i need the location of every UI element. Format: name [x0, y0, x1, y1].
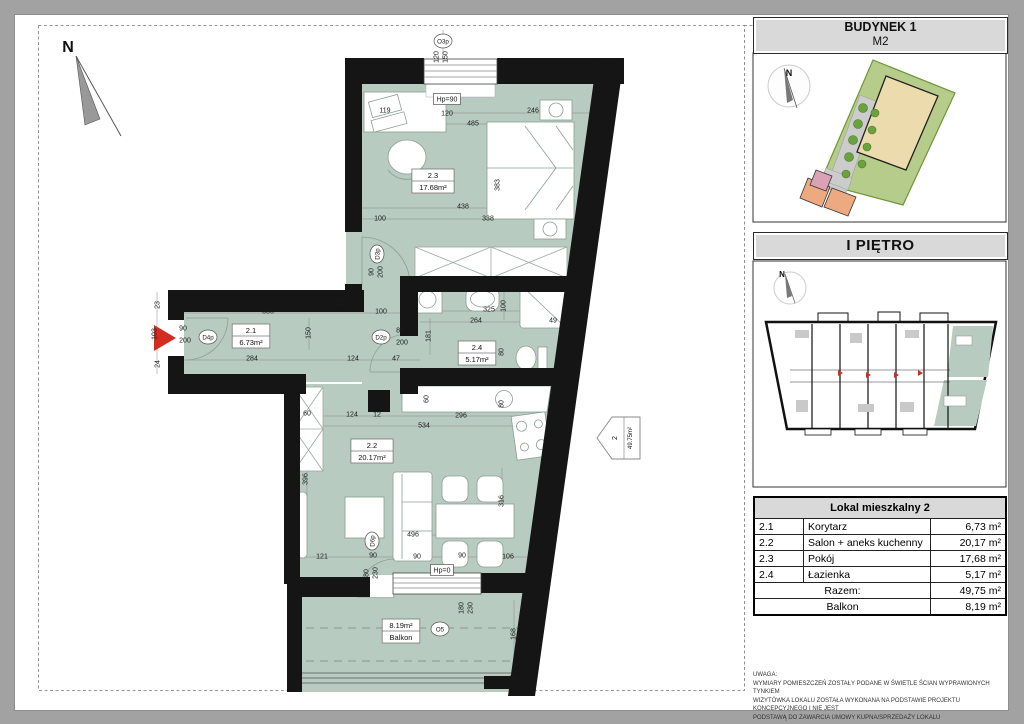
bed: [487, 122, 574, 219]
dimension-label: 200: [179, 337, 191, 344]
dimension-label: 24: [154, 360, 161, 368]
dimension-label: 90: [413, 553, 421, 560]
room-name-cell: Pokój: [804, 551, 931, 567]
dimension-label: 12: [510, 674, 517, 682]
dimension-label: Hp=0: [434, 567, 451, 574]
dimension-label: 485: [467, 120, 479, 127]
room-number: 2.2: [367, 441, 377, 450]
dimension-label: 90: [179, 325, 187, 332]
dimension-label: 80: [363, 569, 370, 577]
summary-area-cell: 8,19 m²: [931, 599, 1007, 616]
room-name-cell: Salon + aneks kuchenny: [804, 535, 931, 551]
disclaimer-notes: UWAGA: WYMIARY POMIESZCZEŃ ZOSTAŁY PODAN…: [753, 671, 1005, 722]
dimension-label: 103: [151, 328, 158, 340]
floorplan-sheet: { "panel": { "building_title": "BUDYNEK …: [0, 0, 1024, 724]
unit-number: 2: [612, 436, 619, 440]
unit-area-table: Lokal mieszkalny 2 2.1Korytarz6,73 m²2.2…: [753, 496, 1007, 616]
note-line: PODSTAWĄ DO ZAWARCIA UMOWY KUPNA/SPRZEDA…: [753, 714, 1005, 723]
opening-label: D2p: [375, 334, 387, 341]
dimension-label: 180: [458, 602, 465, 614]
building-header: BUDYNEK 1 M2: [753, 17, 1008, 54]
compass-n-label: N: [786, 68, 793, 78]
dimension-label: 119: [379, 107, 390, 114]
opening-label: O3p: [437, 38, 449, 45]
dimension-label: 124: [347, 355, 359, 362]
dimension-label: 284: [246, 355, 258, 362]
dimension-label: 396: [302, 473, 309, 485]
note-line: WYMIARY POMIESZCZEŃ ZOSTAŁY PODANE W ŚWI…: [753, 680, 1005, 697]
dimension-label: 49: [549, 317, 557, 324]
summary-area-cell: 49,75 m²: [931, 583, 1007, 599]
dimension-label: 60: [423, 395, 430, 403]
dimension-label: 80: [498, 400, 505, 408]
dimension-label: 90: [368, 268, 375, 276]
dimension-label: 168: [510, 628, 517, 640]
opening-label: D3p: [374, 248, 381, 260]
room-number: 2.4: [472, 343, 482, 352]
dimension-label: 90: [458, 552, 466, 559]
dimension-label: 200: [396, 339, 408, 346]
dining-chair: [442, 476, 468, 502]
room-area: 17.68m²: [419, 183, 447, 192]
dimension-label: 12: [337, 299, 344, 307]
room-number-cell: 2.3: [754, 551, 804, 567]
dining-chair: [477, 541, 503, 567]
summary-label-cell: Balkon: [754, 599, 931, 616]
dimension-label: 230: [467, 602, 474, 614]
room-number-cell: 2.2: [754, 535, 804, 551]
room-number: 8.19m²: [389, 621, 413, 630]
sofa: [393, 472, 432, 561]
dimension-label: 246: [527, 107, 539, 114]
dimension-label: 80: [498, 348, 505, 356]
dimension-label: 383: [494, 179, 501, 191]
toilet: [516, 346, 536, 370]
lamp-icon: [549, 103, 563, 117]
room-number: 2.1: [246, 326, 256, 335]
dimension-label: 181: [425, 330, 432, 342]
dimension-label: 120: [441, 110, 453, 117]
dimension-label: 80: [396, 327, 404, 334]
room-number: 2.3: [428, 171, 438, 180]
window-o5: [393, 573, 481, 594]
table-row: 2.2Salon + aneks kuchenny20,17 m²: [754, 535, 1006, 551]
table-row: 2.1Korytarz6,73 m²: [754, 519, 1006, 535]
site-plan: [753, 53, 1006, 222]
dimension-label: 100: [500, 300, 507, 312]
dimension-label: 338: [482, 215, 494, 222]
dimension-label: 264: [470, 317, 482, 324]
dimension-label: 438: [457, 203, 469, 210]
dimension-label: 316: [498, 495, 505, 507]
dimension-label: 150: [305, 327, 312, 339]
coffee-table: [345, 497, 384, 538]
dimension-label: 124: [346, 411, 358, 418]
room-number-cell: 2.4: [754, 567, 804, 583]
dimension-label: 121: [316, 553, 328, 560]
dimension-label: 150: [442, 51, 449, 63]
room-area: 6.73m²: [239, 338, 263, 347]
dimension-label: 90: [369, 552, 377, 559]
dimension-label: 106: [502, 553, 514, 560]
dimension-label: 60: [303, 410, 311, 417]
room-name-cell: Korytarz: [804, 519, 931, 535]
dimension-label: 12: [373, 411, 381, 418]
room-name-cell: Łazienka: [804, 567, 931, 583]
note-line: UWAGA:: [753, 671, 1005, 680]
dimension-label: 355: [262, 308, 274, 315]
table-row: 2.3Pokój17,68 m²: [754, 551, 1006, 567]
highlighted-unit: [947, 326, 993, 377]
dimension-label: 120: [433, 51, 440, 63]
dining-table: [436, 504, 514, 538]
building-unit: M2: [754, 36, 1007, 49]
dimension-label: 100: [374, 215, 386, 222]
room-area-cell: 20,17 m²: [931, 535, 1007, 551]
building-title: BUDYNEK 1: [754, 19, 1007, 36]
dimension-label: 23: [154, 301, 161, 309]
dimension-label: 100: [375, 308, 387, 315]
room-area-cell: 5,17 m²: [931, 567, 1007, 583]
dimension-label: Hp=90: [437, 96, 458, 103]
opening-label: O5: [436, 626, 445, 633]
dimension-label: 47: [392, 355, 400, 362]
unit-total-area: 49.75m²: [628, 427, 634, 449]
room-area: 5.17m²: [465, 355, 489, 364]
lamp-icon: [543, 222, 557, 236]
table-row: 2.4Łazienka5,17 m²: [754, 567, 1006, 583]
summary-row: Balkon8,19 m²: [754, 599, 1006, 616]
summary-row: Razem:49,75 m²: [754, 583, 1006, 599]
floor-header: I PIĘTRO: [753, 232, 1008, 260]
dimension-label: 496: [407, 531, 419, 538]
door-recess-floor: [346, 230, 362, 290]
table-title: Lokal mieszkalny 2: [754, 497, 1006, 519]
dimension-label: 230: [372, 567, 379, 579]
floor-overview: [753, 261, 1006, 487]
washer-drum-icon: [419, 291, 436, 308]
room-number-cell: 2.1: [754, 519, 804, 535]
toilet-tank: [538, 347, 547, 369]
room-area: 20.17m²: [358, 453, 386, 462]
dimension-label: 296: [455, 412, 467, 419]
dimension-label: 325: [483, 306, 495, 313]
wardrobe-hatched: [415, 247, 567, 278]
dimension-label: 200: [377, 266, 384, 278]
opening-label: D4p: [202, 334, 214, 341]
north-compass: [76, 56, 121, 136]
compass-n-label: N: [62, 39, 74, 56]
note-line: WIZYTÓWKA LOKALU ZOSTAŁA WYKONANA NA POD…: [753, 697, 1005, 714]
room-area-cell: 6,73 m²: [931, 519, 1007, 535]
room-area-cell: 17,68 m²: [931, 551, 1007, 567]
summary-label-cell: Razem:: [754, 583, 931, 599]
compass-n-label: N: [779, 270, 785, 279]
dimension-label: 534: [418, 422, 430, 429]
room-area: Balkon: [390, 633, 413, 642]
opening-label: D6p: [369, 535, 376, 547]
